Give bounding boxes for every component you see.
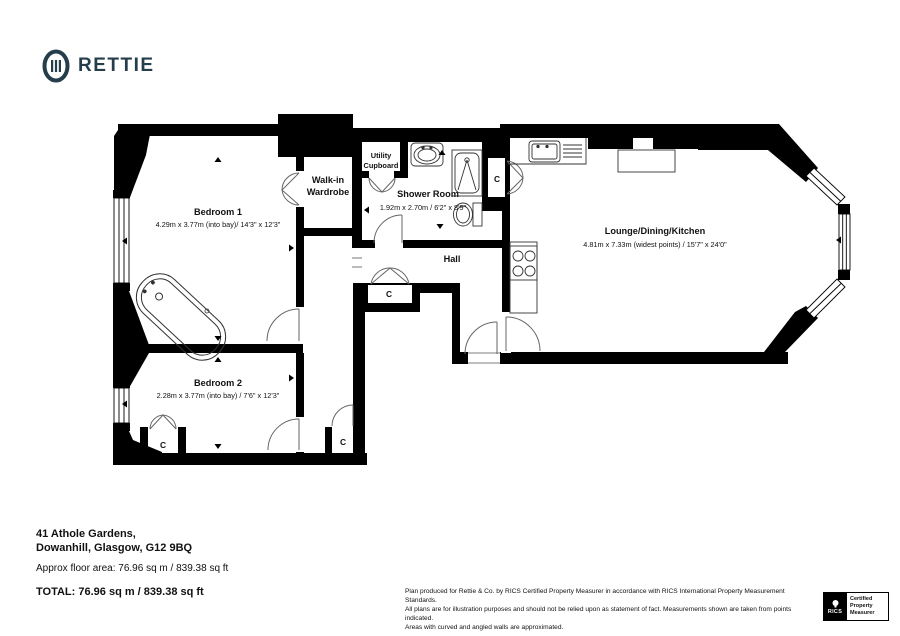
floorplan-page: RETTIE [0, 0, 900, 636]
address-line-2: Dowanhill, Glasgow, G12 9BQ [36, 541, 192, 555]
disclaimer-line-3: Areas with curved and angled walls are a… [405, 623, 817, 632]
basin-icon [411, 143, 443, 166]
badge-line-1: Certified [850, 596, 888, 603]
rics-lion-icon [831, 599, 840, 608]
disclaimer-text: Plan produced for Rettie & Co. by RICS C… [405, 587, 817, 632]
label-lounge: Lounge/Dining/Kitchen [605, 226, 706, 236]
label-cupboard-corridor: C [340, 437, 346, 447]
rics-badge-text: Certified Property Measurer [847, 592, 889, 621]
label-wardrobe-1: Walk-in [312, 175, 345, 185]
property-address: 41 Athole Gardens, Dowanhill, Glasgow, G… [36, 527, 192, 555]
dims-lounge: 4.81m x 7.33m (widest points) / 15'7" x … [583, 240, 727, 249]
rics-logo-icon: RICS [823, 592, 847, 621]
kitchen-sink-icon [508, 138, 586, 164]
kitchen-unit [618, 150, 675, 172]
label-cupboard-kitchen: C [494, 174, 500, 184]
label-cupboard-hall: C [386, 289, 392, 299]
disclaimer-line-2: All plans are for illustration purposes … [405, 605, 817, 623]
label-utility-2: Cupboard [364, 161, 399, 170]
label-cupboard-bedroom2: C [160, 440, 166, 450]
label-wardrobe-2: Wardrobe [307, 187, 350, 197]
label-shower: Shower Room [397, 189, 459, 199]
label-hall: Hall [444, 254, 461, 264]
badge-line-2: Property [850, 603, 888, 610]
address-line-1: 41 Athole Gardens, [36, 527, 192, 541]
label-utility-1: Utility [371, 151, 392, 160]
doors [150, 161, 540, 450]
hob-icon [510, 242, 537, 313]
total-area: TOTAL: 76.96 sq m / 839.38 sq ft [36, 586, 204, 598]
walls [113, 114, 850, 465]
rics-badge: RICS Certified Property Measurer [823, 592, 889, 621]
disclaimer-line-1: Plan produced for Rettie & Co. by RICS C… [405, 587, 817, 605]
badge-line-3: Measurer [850, 610, 888, 617]
dims-shower: 1.92m x 2.70m / 6'2" x 8'9" [380, 203, 467, 212]
measurement-arrows [122, 141, 841, 449]
dims-bedroom1: 4.29m x 3.77m (into bay)/ 14'3" x 12'3" [156, 220, 281, 229]
label-bedroom1: Bedroom 1 [194, 207, 242, 217]
rics-org: RICS [828, 609, 842, 615]
floor-area: Approx floor area: 76.96 sq m / 839.38 s… [36, 563, 228, 574]
dims-bedroom2: 2.28m x 3.77m (into bay) / 7'6" x 12'3" [157, 391, 280, 400]
label-bedroom2: Bedroom 2 [194, 378, 242, 388]
